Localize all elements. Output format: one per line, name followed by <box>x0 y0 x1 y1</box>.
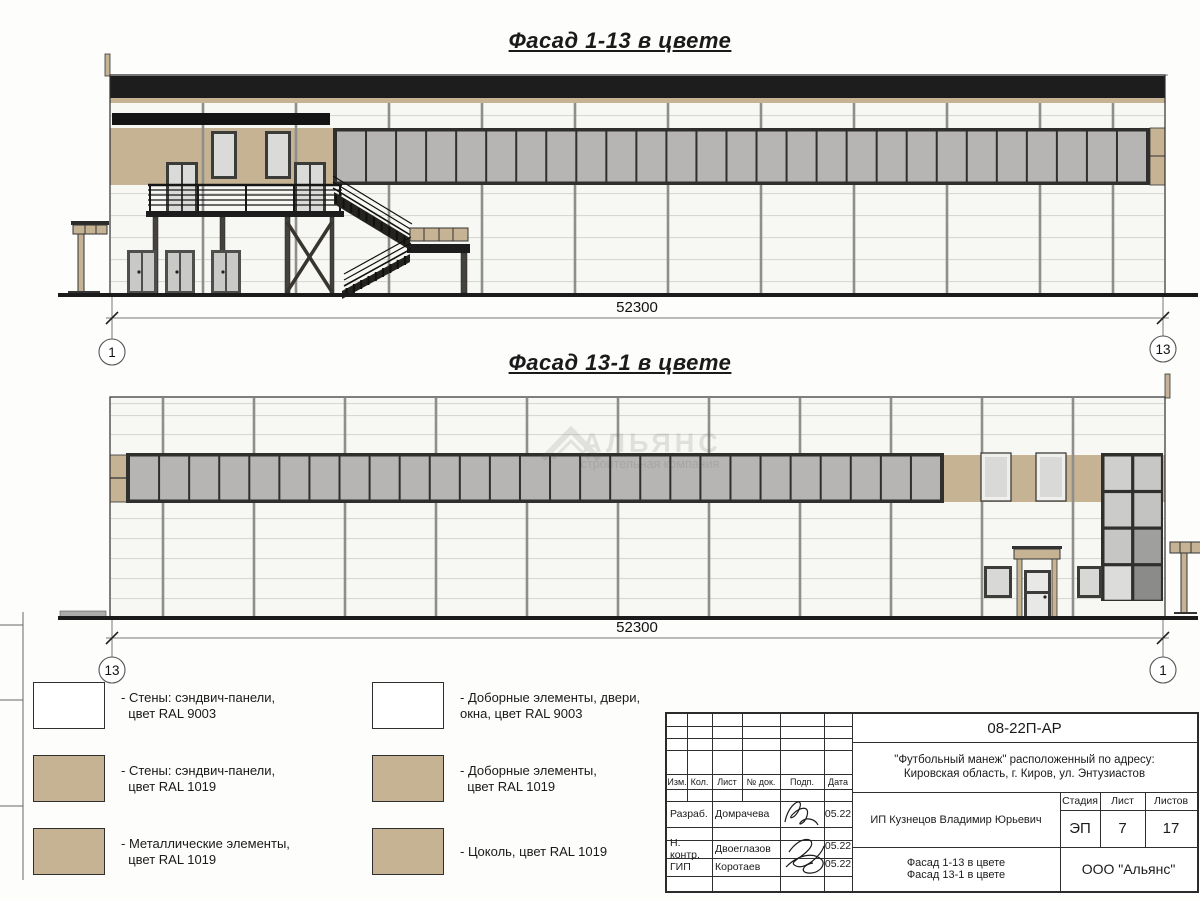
facade1-canopy <box>68 221 109 292</box>
tb-row-name: Домрачева <box>715 801 779 827</box>
tb-row-role: ГИП <box>670 858 712 876</box>
facade2-ribbon-windows <box>126 453 944 503</box>
tb-row-role: Разраб. <box>670 801 712 827</box>
sheet-frame-marks <box>0 612 23 880</box>
tb-stage-label: Стадия <box>1060 792 1100 810</box>
facade1-ground-doors <box>127 250 241 294</box>
watermark-name: АЛЬЯНС <box>582 428 722 458</box>
facade1-axis-right: 13 <box>1155 342 1170 357</box>
signature-2 <box>786 840 824 874</box>
legend-swatch-ral9003 <box>372 682 444 729</box>
legend-item: - Цоколь, цвет RAL 1019 <box>372 828 607 875</box>
tb-sheets-label: Листов <box>1145 792 1197 810</box>
facade1-dimension-label: 52300 <box>616 299 658 316</box>
legend-item: - Доборные элементы, двери, окна, цвет R… <box>372 682 640 729</box>
signature-1 <box>785 802 818 825</box>
facade2-entrance <box>1012 546 1062 618</box>
tb-row-name: Коротаев <box>715 858 779 876</box>
tb-sheet-title: Фасад 1-13 в цвете Фасад 13-1 в цвете <box>852 847 1060 891</box>
facade2-right-canopy <box>1170 542 1200 613</box>
tb-row-role: Н. контр. <box>670 840 712 858</box>
legend-item: - Стены: сэндвич-панели, цвет RAL 9003 <box>33 682 275 729</box>
tb-col-doc: № док. <box>742 774 780 789</box>
roof-pole <box>105 54 110 76</box>
legend-swatch-ral1019 <box>372 755 444 802</box>
tb-sheets-total: 17 <box>1145 810 1197 847</box>
tb-company: ООО "Альянс" <box>1060 847 1197 891</box>
legend-label: - Доборные элементы, двери, окна, цвет R… <box>460 690 640 722</box>
tb-col-list: Лист <box>712 774 742 789</box>
roof-pole <box>1165 374 1170 398</box>
tb-sheet-number: 7 <box>1100 810 1145 847</box>
tb-col-podp: Подп. <box>780 774 824 789</box>
tb-col-kol: Кол. <box>687 774 712 789</box>
facade2-title: Фасад 13-1 в цвете <box>320 350 920 376</box>
facade1-title: Фасад 1-13 в цвете <box>320 28 920 54</box>
legend-label: - Цоколь, цвет RAL 1019 <box>460 844 607 860</box>
tb-stage-value: ЭП <box>1060 810 1100 847</box>
legend-label: - Стены: сэндвич-панели, цвет RAL 9003 <box>121 690 275 722</box>
legend-label: - Стены: сэндвич-панели, цвет RAL 1019 <box>121 763 275 795</box>
legend-swatch-ral1019 <box>33 828 105 875</box>
tb-project: "Футбольный манеж" расположенный по адре… <box>852 743 1197 791</box>
title-block: Изм. Кол. Лист № док. Подп. Дата Разраб.… <box>665 712 1199 893</box>
tb-doc-number: 08-22П-АР <box>852 714 1197 742</box>
legend-label: - Доборные элементы, цвет RAL 1019 <box>460 763 597 795</box>
facade2-axis-left: 13 <box>104 663 119 678</box>
tb-row-name: Двоеглазов <box>715 840 779 858</box>
facade2-dimension-label: 52300 <box>616 619 658 636</box>
tb-sheet-label: Лист <box>1100 792 1145 810</box>
tb-col-izm: Изм. <box>667 774 687 789</box>
signatures <box>777 794 839 889</box>
facade2-grid-window <box>1101 453 1163 601</box>
legend-item: - Металлические элементы, цвет RAL 1019 <box>33 828 290 875</box>
legend-item: - Стены: сэндвич-панели, цвет RAL 1019 <box>33 755 275 802</box>
facade1-ribbon-windows <box>333 128 1150 185</box>
facade1-axis-left: 1 <box>108 345 116 360</box>
ground-line <box>58 293 1198 297</box>
drawing-sheet: 52300 1 13 <box>0 0 1200 900</box>
legend-item: - Доборные элементы, цвет RAL 1019 <box>372 755 597 802</box>
tb-col-data: Дата <box>824 774 852 789</box>
tb-client: ИП Кузнецов Владимир Юрьевич <box>852 793 1060 846</box>
legend-label: - Металлические элементы, цвет RAL 1019 <box>121 836 290 868</box>
facade2-drawing: АЛЬЯНС строительная компания 52300 13 1 <box>58 374 1200 683</box>
legend-swatch-ral1019 <box>372 828 444 875</box>
facade2-axis-right: 1 <box>1159 663 1167 678</box>
legend-swatch-ral1019 <box>33 755 105 802</box>
watermark-tagline: строительная компания <box>581 457 719 471</box>
legend-swatch-ral9003 <box>33 682 105 729</box>
facade1-drawing: 52300 1 13 <box>58 54 1198 365</box>
